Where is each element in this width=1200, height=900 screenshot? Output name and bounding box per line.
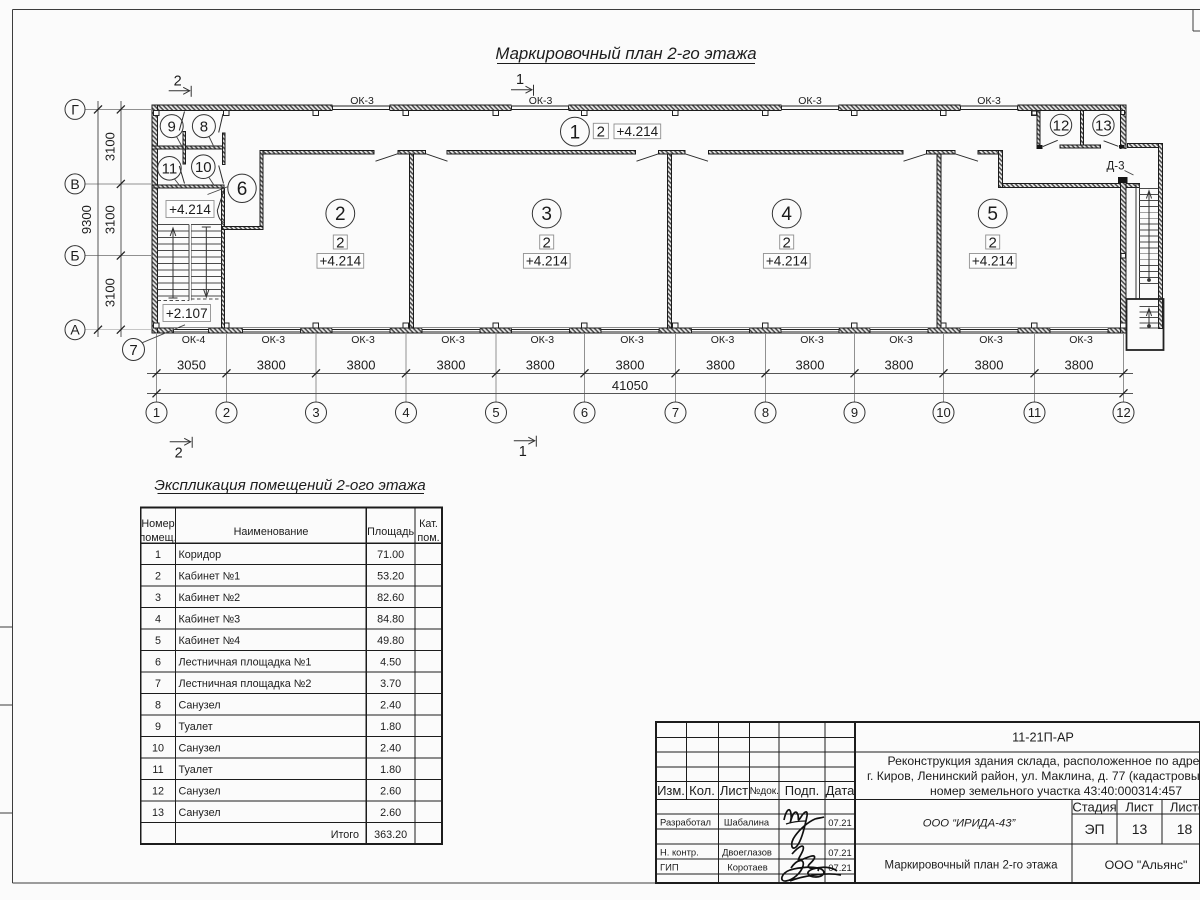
svg-text:11-21П-АР: 11-21П-АР [1012,731,1074,745]
svg-text:2: 2 [155,571,161,583]
svg-text:3100: 3100 [103,278,118,307]
svg-text:3.70: 3.70 [380,678,401,690]
svg-text:Санузел: Санузел [179,786,221,798]
svg-text:11: 11 [152,764,163,776]
svg-text:1: 1 [516,72,524,88]
svg-text:2.60: 2.60 [380,786,401,798]
svg-text:11: 11 [1028,405,1042,420]
svg-text:2: 2 [336,234,344,251]
svg-text:13: 13 [152,807,164,819]
svg-text:2: 2 [175,445,183,461]
svg-text:ОК-4: ОК-4 [182,334,206,346]
svg-text:2: 2 [174,73,182,89]
svg-text:ОК-3: ОК-3 [889,334,913,346]
svg-text:Разработал: Разработал [660,817,711,828]
svg-text:номер земельного участка 43:40: номер земельного участка 43:40:000314:45… [930,784,1182,798]
svg-text:3800: 3800 [347,358,376,373]
svg-text:41050: 41050 [612,378,648,393]
svg-text:3050: 3050 [177,358,206,373]
svg-text:Кол.: Кол. [689,783,715,798]
svg-text:13: 13 [1095,117,1112,134]
svg-text:3800: 3800 [796,358,825,373]
svg-text:7: 7 [672,405,679,420]
svg-text:3800: 3800 [975,358,1004,373]
svg-text:Маркировочный план 2-го этажа: Маркировочный план 2-го этажа [495,44,756,63]
svg-text:4: 4 [781,204,792,225]
svg-text:9: 9 [851,405,858,420]
svg-text:Номер: Номер [141,518,174,530]
svg-text:ООО “ИРИДА-43”: ООО “ИРИДА-43” [923,818,1017,830]
svg-text:12: 12 [1053,117,1070,134]
svg-text:9300: 9300 [79,205,94,234]
svg-text:г. Киров, Ленинский район, ул.: г. Киров, Ленинский район, ул. Маклина, … [867,769,1200,783]
svg-text:2: 2 [989,234,997,251]
svg-text:12: 12 [1116,405,1130,420]
svg-text:Листов: Листов [1170,800,1200,815]
svg-text:1.80: 1.80 [380,764,401,776]
svg-text:2.60: 2.60 [380,807,401,819]
svg-text:2: 2 [783,234,791,251]
svg-text:3: 3 [541,204,552,225]
svg-text:ОК-3: ОК-3 [529,95,553,107]
svg-text:13: 13 [1132,821,1148,837]
svg-text:2: 2 [543,234,551,251]
svg-text:ГИП: ГИП [660,862,679,873]
svg-text:пом.: пом. [417,532,439,544]
svg-text:07.21: 07.21 [828,817,851,828]
svg-text:9: 9 [155,721,161,733]
svg-text:3: 3 [312,405,319,420]
svg-text:1: 1 [519,444,527,460]
svg-text:6: 6 [237,179,248,200]
svg-text:5: 5 [155,635,161,647]
svg-text:5: 5 [492,405,499,420]
svg-text:4.50: 4.50 [380,657,401,669]
svg-text:6: 6 [155,657,161,669]
svg-text:7: 7 [155,678,161,690]
svg-text:Туалет: Туалет [179,721,213,733]
svg-text:1: 1 [155,549,161,561]
svg-text:8: 8 [762,405,769,420]
svg-text:Коридор: Коридор [179,549,222,561]
svg-text:Кабинет №2: Кабинет №2 [179,592,241,604]
svg-text:Шабалина: Шабалина [724,817,770,828]
svg-text:10: 10 [195,159,212,176]
svg-text:3100: 3100 [103,205,118,234]
svg-text:Экспликация помещений 2-ого эт: Экспликация помещений 2-ого этажа [154,477,425,494]
svg-text:3800: 3800 [257,358,286,373]
svg-text:3: 3 [155,592,161,604]
svg-text:Коротаев: Коротаев [727,862,768,873]
svg-text:Стадия: Стадия [1072,800,1116,815]
svg-text:Кабинет №1: Кабинет №1 [179,571,241,583]
svg-text:Н. контр.: Н. контр. [660,847,699,858]
svg-text:Санузел: Санузел [179,700,221,712]
svg-text:Изм.: Изм. [657,783,685,798]
svg-text:+4.214: +4.214 [766,254,808,269]
svg-text:2.40: 2.40 [380,743,401,755]
svg-text:Санузел: Санузел [179,807,221,819]
svg-text:3800: 3800 [437,358,466,373]
svg-text:Маркировочный план 2-го этажа: Маркировочный план 2-го этажа [885,860,1059,872]
svg-text:ОК-3: ОК-3 [800,334,824,346]
svg-text:ОК-3: ОК-3 [979,334,1003,346]
svg-text:+4.214: +4.214 [169,202,211,217]
svg-text:11: 11 [162,161,178,178]
svg-text:71.00: 71.00 [377,549,404,561]
svg-text:ОК-3: ОК-3 [1069,334,1093,346]
svg-text:84.80: 84.80 [377,614,404,626]
svg-text:ОК-3: ОК-3 [798,95,822,107]
svg-text:Санузел: Санузел [179,743,221,755]
svg-text:3100: 3100 [103,132,118,161]
svg-text:9: 9 [168,118,176,135]
svg-text:5: 5 [987,204,998,225]
svg-text:Реконструкция здания склада, р: Реконструкция здания склада, расположенн… [888,754,1200,768]
svg-text:+4.214: +4.214 [526,254,568,269]
svg-text:Подп.: Подп. [785,783,820,798]
svg-text:3800: 3800 [706,358,735,373]
svg-text:+4.214: +4.214 [617,124,659,139]
svg-text:ОК-3: ОК-3 [711,334,735,346]
svg-text:3800: 3800 [616,358,645,373]
svg-text:ОК-3: ОК-3 [530,334,554,346]
svg-text:12: 12 [152,786,164,798]
svg-text:2: 2 [223,405,230,420]
svg-text:2.40: 2.40 [380,700,401,712]
svg-text:ОК-3: ОК-3 [977,95,1001,107]
svg-text:Г: Г [71,101,79,117]
svg-text:помещ.: помещ. [139,532,176,544]
svg-text:6: 6 [581,405,588,420]
svg-text:8: 8 [200,118,208,135]
svg-text:Туалет: Туалет [179,764,213,776]
svg-text:Д-3: Д-3 [1106,160,1124,172]
svg-text:Дата: Дата [826,783,856,798]
svg-text:1: 1 [153,405,160,420]
svg-text:1.80: 1.80 [380,721,401,733]
svg-text:3800: 3800 [1065,358,1094,373]
svg-text:Лист: Лист [1125,800,1153,815]
svg-text:+4.214: +4.214 [972,254,1014,269]
svg-text:ЭП: ЭП [1084,821,1104,837]
svg-text:10: 10 [152,743,164,755]
svg-text:4: 4 [155,614,161,626]
svg-text:ОК-3: ОК-3 [350,95,374,107]
svg-text:+2.107: +2.107 [166,306,208,321]
svg-text:Площадь: Площадь [367,526,414,538]
svg-text:1: 1 [570,122,581,143]
svg-text:53.20: 53.20 [377,571,404,583]
svg-text:Наименование: Наименование [234,526,309,538]
svg-text:Двоеглазов: Двоеглазов [722,847,772,858]
svg-text:10: 10 [936,405,950,420]
svg-text:2: 2 [597,123,605,140]
svg-text:7: 7 [129,342,137,359]
svg-text:ОК-3: ОК-3 [351,334,375,346]
svg-text:8: 8 [155,700,161,712]
svg-text:ОК-3: ОК-3 [441,334,465,346]
svg-text:Лестничная площадка №2: Лестничная площадка №2 [179,678,312,690]
svg-text:+4.214: +4.214 [320,254,362,269]
svg-text:Итого: Итого [331,829,359,841]
svg-text:ООО "Альянс": ООО "Альянс" [1105,858,1188,872]
svg-text:4: 4 [402,405,409,420]
svg-text:Кабинет №4: Кабинет №4 [179,635,241,647]
svg-text:363.20: 363.20 [374,829,407,841]
svg-text:ОК-3: ОК-3 [261,334,285,346]
svg-text:82.60: 82.60 [377,592,404,604]
svg-text:3800: 3800 [885,358,914,373]
svg-text:Б: Б [70,248,79,264]
svg-text:18: 18 [1177,821,1193,837]
svg-text:07.21: 07.21 [828,847,851,858]
svg-text:3800: 3800 [526,358,555,373]
svg-text:2: 2 [335,204,346,225]
svg-text:А: А [70,322,80,338]
svg-text:Лист: Лист [720,783,748,798]
svg-text:В: В [70,176,79,192]
svg-text:Кабинет №3: Кабинет №3 [179,614,241,626]
svg-text:ОК-3: ОК-3 [620,334,644,346]
svg-text:Кат.: Кат. [419,518,438,530]
svg-text:49.80: 49.80 [377,635,404,647]
svg-text:Лестничная площадка №1: Лестничная площадка №1 [179,657,312,669]
svg-text:№док.: №док. [750,786,779,797]
